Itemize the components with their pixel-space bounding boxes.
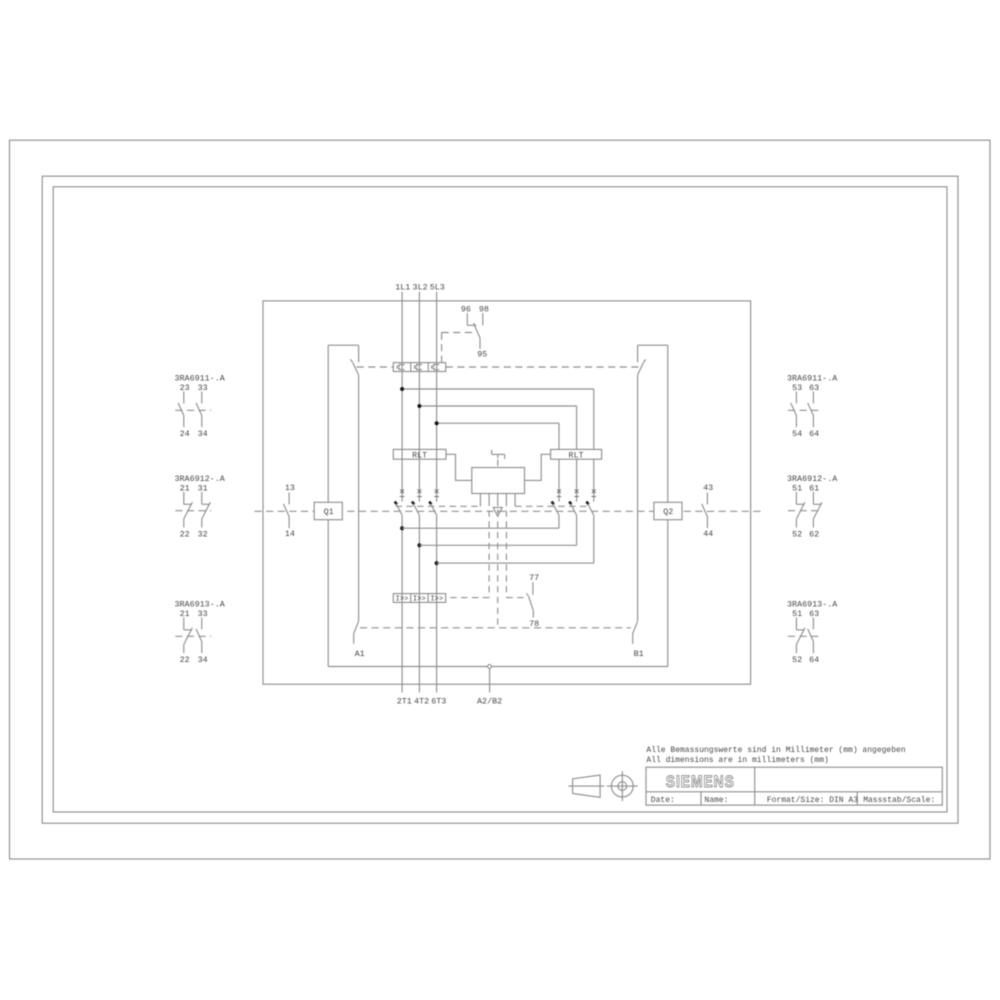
svg-text:I>>: I>>	[413, 596, 426, 604]
svg-text:Format/Size: DIN A3: Format/Size: DIN A3	[767, 796, 858, 805]
svg-text:Massstab/Scale:: Massstab/Scale:	[863, 796, 935, 805]
svg-text:44: 44	[703, 529, 713, 539]
svg-text:Date:: Date:	[651, 796, 675, 805]
svg-text:77: 77	[529, 573, 539, 583]
svg-text:RLT: RLT	[569, 450, 584, 460]
svg-text:63: 63	[809, 609, 819, 619]
svg-text:63: 63	[809, 383, 819, 393]
svg-text:Q1: Q1	[324, 507, 334, 517]
svg-text:Name:: Name:	[704, 796, 728, 805]
svg-text:B1: B1	[634, 649, 644, 659]
svg-text:51: 51	[792, 483, 802, 493]
svg-text:5L3: 5L3	[430, 283, 445, 293]
svg-text:52: 52	[792, 530, 802, 540]
svg-text:32: 32	[198, 530, 208, 540]
svg-text:1L1: 1L1	[395, 283, 410, 293]
svg-text:34: 34	[198, 655, 208, 665]
svg-text:Alle Bemassungswerte sind in M: Alle Bemassungswerte sind in Millimeter …	[646, 746, 905, 755]
svg-text:22: 22	[180, 655, 190, 665]
svg-text:6T3: 6T3	[431, 696, 446, 706]
svg-text:96: 96	[461, 304, 471, 314]
svg-text:I>>: I>>	[396, 596, 409, 604]
svg-text:3L2: 3L2	[413, 283, 428, 293]
svg-text:14: 14	[285, 529, 295, 539]
svg-text:64: 64	[809, 655, 819, 665]
svg-text:62: 62	[809, 530, 819, 540]
svg-text:A2/B2: A2/B2	[477, 696, 502, 706]
svg-text:23: 23	[180, 383, 190, 393]
svg-text:2T1: 2T1	[397, 696, 412, 706]
svg-text:24: 24	[180, 429, 190, 439]
svg-text:61: 61	[809, 483, 819, 493]
svg-text:64: 64	[809, 429, 819, 439]
svg-text:51: 51	[792, 609, 802, 619]
svg-text:33: 33	[198, 609, 208, 619]
svg-text:31: 31	[198, 483, 208, 493]
svg-text:52: 52	[792, 655, 802, 665]
svg-text:A1: A1	[355, 649, 365, 659]
svg-text:4T2: 4T2	[414, 696, 429, 706]
svg-text:54: 54	[792, 429, 802, 439]
svg-text:95: 95	[477, 350, 487, 360]
svg-text:22: 22	[180, 530, 190, 540]
svg-text:43: 43	[703, 483, 713, 493]
svg-text:13: 13	[285, 483, 295, 493]
svg-text:Q2: Q2	[663, 507, 673, 517]
svg-text:All dimensions are in millimet: All dimensions are in millimeters (mm)	[646, 756, 828, 765]
svg-text:21: 21	[180, 609, 190, 619]
svg-text:34: 34	[198, 429, 208, 439]
svg-text:21: 21	[180, 483, 190, 493]
svg-text:53: 53	[792, 383, 802, 393]
svg-text:I>>: I>>	[430, 596, 443, 604]
svg-text:33: 33	[198, 383, 208, 393]
svg-text:RLT: RLT	[412, 450, 427, 460]
svg-text:SIEMENS: SIEMENS	[666, 772, 735, 791]
svg-text:98: 98	[479, 304, 489, 314]
